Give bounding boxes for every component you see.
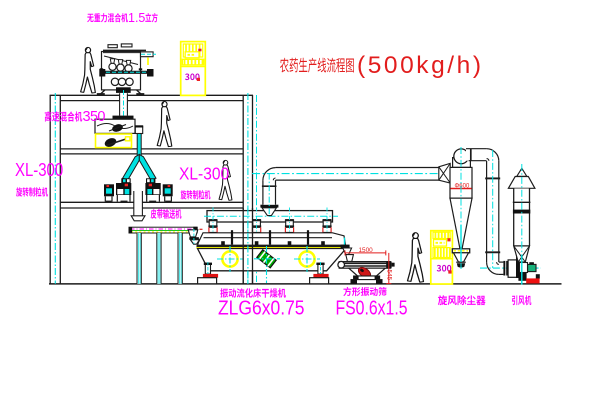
- svg-text:FS0.6x1.5: FS0.6x1.5: [336, 297, 408, 319]
- svg-text:XL-300: XL-300: [179, 164, 229, 184]
- svg-text:Φ600: Φ600: [455, 183, 470, 189]
- svg-text:1.5: 1.5: [128, 11, 145, 25]
- svg-text:XL-300: XL-300: [15, 159, 63, 180]
- svg-text:(500kg/h): (500kg/h): [357, 52, 481, 79]
- svg-text:545: 545: [386, 270, 393, 281]
- svg-text:1500: 1500: [359, 247, 374, 254]
- svg-text:350: 350: [83, 109, 106, 125]
- svg-text:ZLG6x0.75: ZLG6x0.75: [218, 297, 305, 319]
